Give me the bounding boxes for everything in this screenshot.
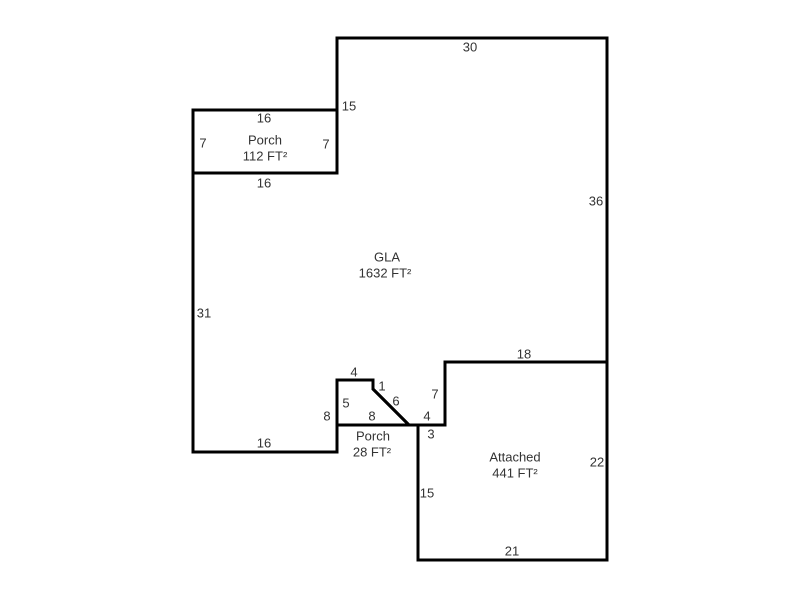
dimension-label: 16 [257,175,271,190]
dimension-label: 5 [342,395,349,410]
dimension-label: 7 [322,136,329,151]
dimension-label: 1 [378,378,385,393]
area-outline-gla [193,38,607,452]
area-name-label-porch-rear: Porch [356,428,390,443]
floor-plan-page: GLA1632 FT²Porch112 FT²Porch28 FT²Attach… [0,0,800,600]
dimension-label: 4 [350,364,357,379]
labels-layer: GLA1632 FT²Porch112 FT²Porch28 FT²Attach… [197,39,604,558]
walls-layer [193,38,607,560]
dimension-label: 6 [392,393,399,408]
dimension-label: 30 [463,39,477,54]
dimension-label: 15 [342,98,356,113]
dimension-label: 7 [199,135,206,150]
dimension-label: 16 [257,435,271,450]
dimension-label: 16 [257,110,271,125]
dimension-label: 7 [431,386,438,401]
dimension-label: 21 [505,543,519,558]
dimension-label: 22 [590,454,604,469]
area-size-label-attached-garage: 441 FT² [492,465,538,480]
dimension-label: 18 [517,346,531,361]
dimension-label: 8 [368,408,375,423]
area-name-label-porch-front: Porch [248,132,282,147]
area-name-label-gla: GLA [374,249,400,264]
area-size-label-porch-rear: 28 FT² [353,444,392,459]
dimension-label: 3 [427,426,434,441]
dimension-label: 36 [589,193,603,208]
area-size-label-porch-front: 112 FT² [243,148,288,163]
area-size-label-gla: 1632 FT² [359,265,412,280]
dimension-label: 4 [423,408,430,423]
dimension-label: 8 [323,408,330,423]
floor-plan-sketch: GLA1632 FT²Porch112 FT²Porch28 FT²Attach… [0,0,800,600]
area-name-label-attached-garage: Attached [489,449,540,464]
dimension-label: 15 [420,485,434,500]
dimension-label: 31 [197,305,211,320]
